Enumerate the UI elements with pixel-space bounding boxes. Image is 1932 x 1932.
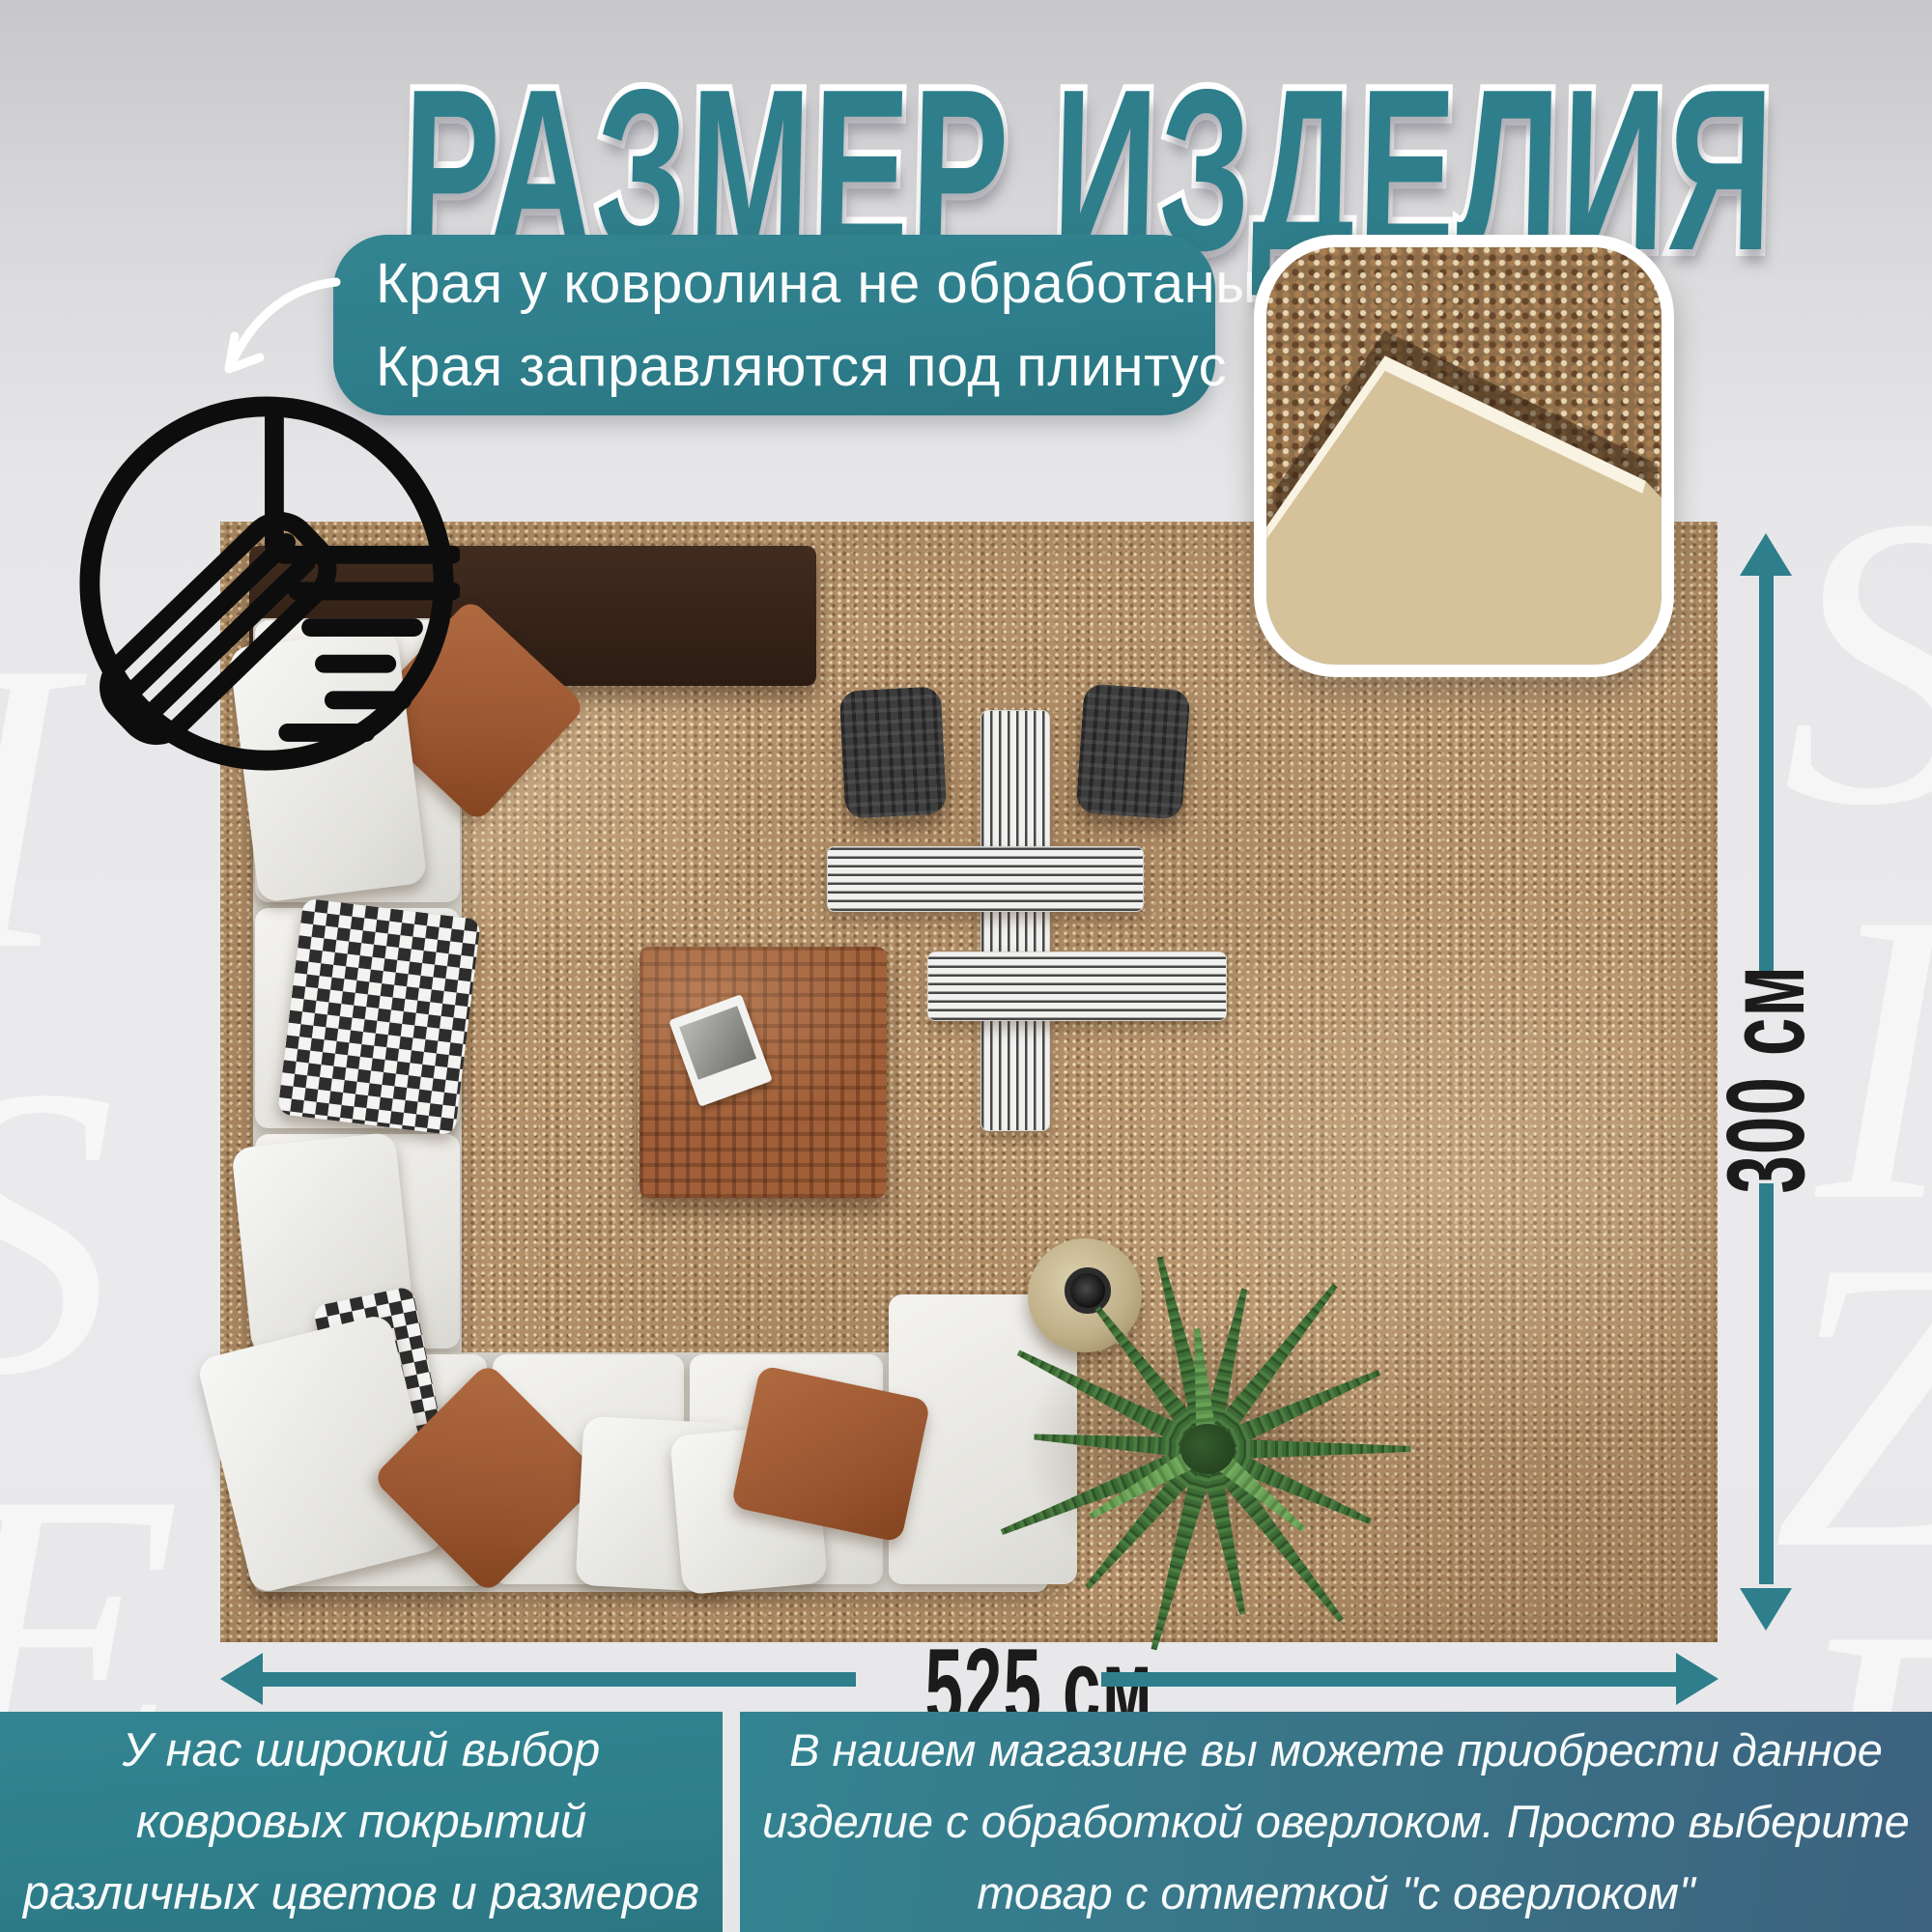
callout-bubble: Края у ковролина не обработаны Края запр… [333, 235, 1215, 415]
callout-line-1: Края у ковролина не обработаны [376, 242, 1215, 326]
palm-center [1180, 1424, 1235, 1474]
watermark-letter: S [0, 1024, 116, 1439]
info-right-line-1: В нашем магазине вы можете приобрести да… [789, 1715, 1883, 1786]
carpet-edge-under-plinth-icon [77, 394, 460, 777]
slat-bench-horizontal [827, 846, 1144, 912]
dimension-line [1101, 1672, 1679, 1687]
info-box-right: В нашем магазине вы можете приобрести да… [740, 1712, 1932, 1932]
info-left-line-3: различных цветов и размеров [23, 1858, 699, 1929]
info-right-line-2: изделие с обработкой оверлоком. Просто в… [762, 1786, 1910, 1858]
dark-ottoman-left [839, 686, 948, 818]
carpet-closeup-photo [1266, 247, 1662, 665]
magazine-photo [679, 1006, 756, 1079]
arrowhead-down-icon [1740, 1588, 1792, 1631]
slat-bench-horizontal [927, 952, 1227, 1021]
info-right-line-3: товар с отметкой "с оверлоком" [977, 1858, 1694, 1929]
inset-photo-frame [1254, 235, 1674, 677]
info-left-line-2: ковровых покрытий [136, 1786, 586, 1858]
watermark-letter: S [1782, 454, 1932, 869]
slat-bench-vertical [980, 710, 1050, 1131]
watermark-letter: I [0, 599, 71, 1014]
product-size-infographic: I S E S I Z E РАЗМЕР ИЗДЕЛИЯ [0, 0, 1932, 1932]
palm-plant [985, 1256, 1430, 1642]
info-left-line-1: У нас широкий выбор [123, 1715, 601, 1786]
houndstooth-pillow [277, 898, 481, 1136]
curved-arrow-icon [205, 272, 345, 386]
dimension-line [259, 1672, 856, 1687]
dimension-line [1759, 1183, 1774, 1584]
height-dimension-label: 300 см [1621, 934, 1911, 1224]
arrowhead-up-icon [1740, 533, 1792, 576]
arrowhead-left-icon [220, 1653, 263, 1705]
info-box-left: У нас широкий выбор ковровых покрытий ра… [0, 1712, 723, 1932]
callout-line-2: Края заправляются под плинтус [376, 326, 1215, 409]
arrowhead-right-icon [1676, 1653, 1719, 1705]
dark-ottoman-right [1075, 683, 1190, 819]
